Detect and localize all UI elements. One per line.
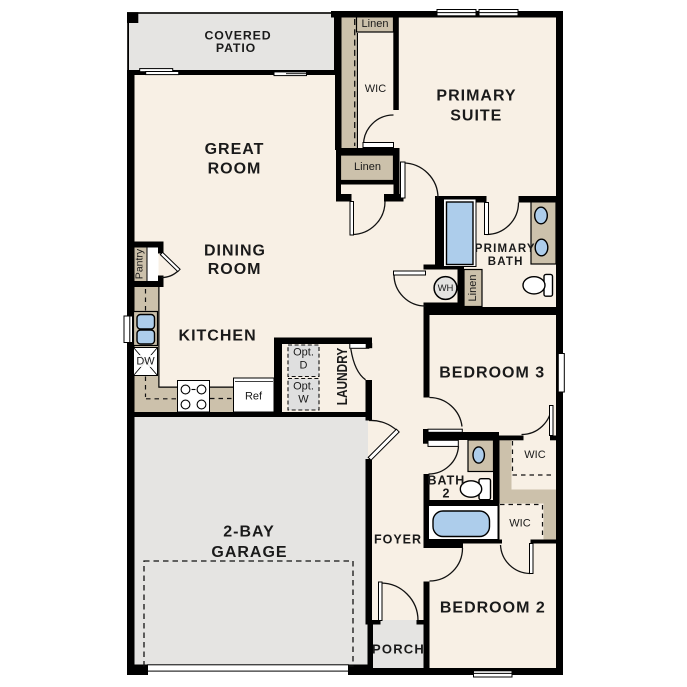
svg-text:Opt.: Opt.: [293, 347, 314, 359]
svg-text:PRIMARY: PRIMARY: [436, 88, 516, 105]
svg-text:Linen: Linen: [467, 275, 479, 302]
svg-text:GARAGE: GARAGE: [211, 544, 287, 561]
svg-text:LAUNDRY: LAUNDRY: [334, 348, 351, 406]
svg-text:ROOM: ROOM: [208, 160, 262, 177]
svg-text:Opt.: Opt.: [293, 381, 314, 393]
svg-text:BEDROOM 3: BEDROOM 3: [439, 364, 545, 381]
svg-text:WIC: WIC: [524, 449, 545, 461]
svg-text:WH: WH: [438, 283, 454, 294]
svg-text:Pantry: Pantry: [134, 248, 146, 279]
svg-text:FOYER: FOYER: [374, 533, 422, 547]
svg-text:Linen: Linen: [362, 18, 389, 30]
svg-text:DINING: DINING: [204, 243, 266, 260]
svg-text:SUITE: SUITE: [450, 108, 502, 125]
svg-text:PORCH: PORCH: [372, 641, 425, 656]
svg-text:WIC: WIC: [365, 83, 386, 95]
svg-text:PRIMARY: PRIMARY: [475, 243, 536, 255]
svg-text:W: W: [298, 394, 309, 406]
svg-text:KITCHEN: KITCHEN: [179, 328, 257, 345]
svg-text:PATIO: PATIO: [216, 41, 256, 55]
svg-text:D: D: [300, 360, 308, 372]
svg-text:DW: DW: [136, 356, 155, 368]
svg-text:Ref: Ref: [245, 391, 263, 403]
svg-text:2-BAY: 2-BAY: [223, 523, 275, 540]
svg-text:Linen: Linen: [354, 161, 381, 173]
svg-text:BEDROOM 2: BEDROOM 2: [440, 599, 546, 616]
svg-text:WIC: WIC: [509, 518, 530, 530]
svg-text:BATH: BATH: [428, 473, 466, 487]
svg-text:2: 2: [443, 487, 451, 501]
svg-text:ROOM: ROOM: [208, 261, 262, 278]
svg-text:GREAT: GREAT: [205, 141, 265, 158]
svg-text:BATH: BATH: [488, 256, 524, 268]
